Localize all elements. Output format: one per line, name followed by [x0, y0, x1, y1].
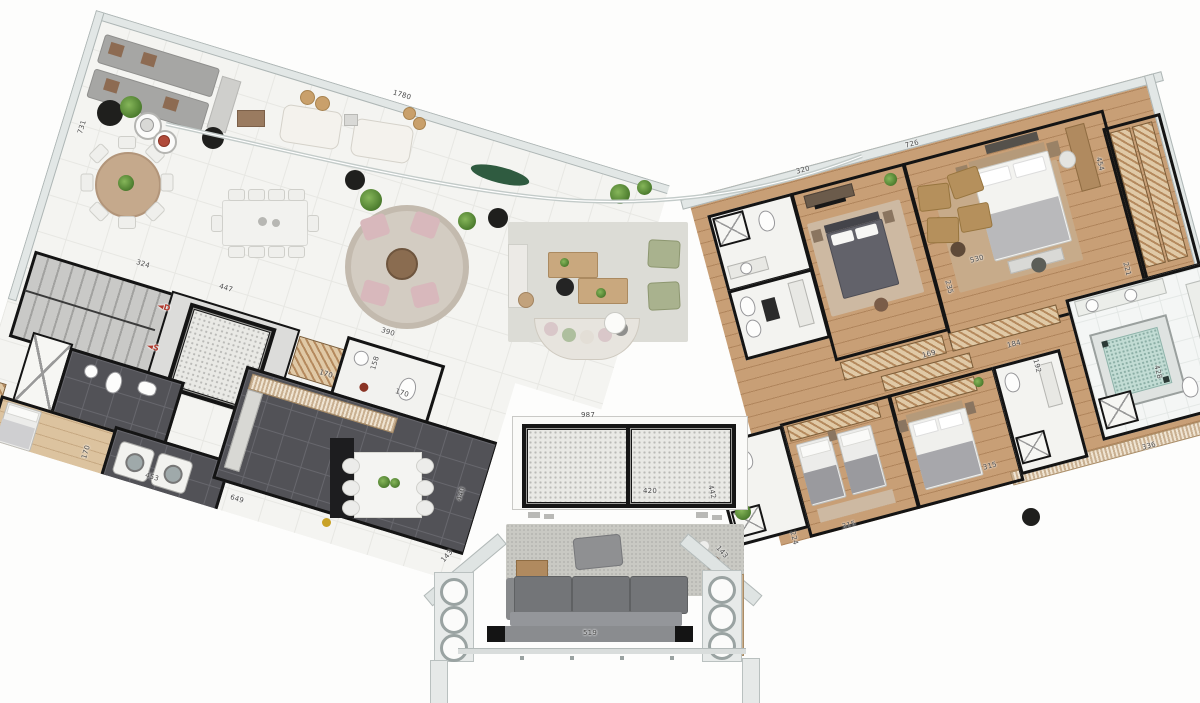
grill-grate — [158, 135, 170, 147]
pillar-leg — [742, 658, 760, 703]
baluster — [520, 656, 524, 660]
planter-bush — [120, 96, 142, 118]
baluster — [670, 656, 674, 660]
floor-plan: 1780731324447◄D◄S17045364939015817017044… — [0, 0, 1200, 703]
chair — [268, 246, 285, 258]
planter — [345, 170, 365, 190]
centerpiece — [390, 478, 400, 488]
chair — [228, 246, 245, 258]
decor-plant — [596, 288, 606, 298]
green-pouf — [647, 281, 680, 311]
sofa-cushion — [544, 322, 558, 336]
table-plant — [118, 175, 134, 191]
chair — [416, 500, 434, 516]
bush — [637, 180, 652, 195]
chair — [268, 189, 285, 201]
baluster-rail — [458, 648, 746, 654]
hall-sofa-cushion — [572, 576, 630, 614]
coffee-table — [548, 252, 598, 278]
armchair — [927, 217, 959, 244]
pouf — [315, 96, 330, 111]
armchair — [917, 182, 952, 212]
downlight — [708, 632, 736, 660]
chair — [288, 189, 305, 201]
downlight — [440, 578, 468, 606]
chair — [161, 174, 174, 192]
chair — [228, 189, 245, 201]
chair — [118, 136, 136, 149]
centerpiece — [258, 217, 267, 226]
downlight — [440, 606, 468, 634]
chair — [118, 216, 136, 229]
chair — [307, 215, 319, 232]
planter — [202, 127, 224, 149]
decor-plant — [560, 258, 569, 267]
hall-sofa-cushion — [514, 576, 572, 614]
hall-sofa-back — [487, 626, 693, 642]
chair — [211, 215, 223, 232]
doormat-item — [544, 514, 554, 519]
chair — [248, 189, 265, 201]
grill-grate — [140, 118, 154, 132]
stool-gold — [322, 518, 331, 527]
round-tray — [556, 278, 574, 296]
doormat-item — [712, 515, 722, 520]
downlight — [708, 576, 736, 604]
downlight — [708, 604, 736, 632]
chair — [342, 480, 360, 496]
bush — [458, 212, 476, 230]
centerpiece — [378, 476, 390, 488]
elevator-shaft — [522, 424, 632, 508]
column-cap — [487, 626, 505, 642]
green-pouf — [647, 239, 680, 269]
bush — [610, 184, 630, 204]
chair — [416, 480, 434, 496]
doormat-item — [528, 512, 540, 518]
sofa-cushion — [580, 330, 594, 344]
hall-lounge-chair — [572, 534, 623, 571]
pouf — [413, 117, 426, 130]
pouf — [300, 90, 315, 105]
bush — [360, 189, 382, 211]
hall-sofa-cushion — [630, 576, 688, 614]
doormat-item — [696, 512, 708, 518]
chair — [81, 174, 94, 192]
hall-sofa-seat — [510, 612, 682, 626]
baluster — [620, 656, 624, 660]
chair — [288, 246, 305, 258]
chair — [342, 500, 360, 516]
side-table — [604, 312, 626, 334]
planter — [97, 100, 123, 126]
planter — [1022, 508, 1040, 526]
chair — [416, 458, 434, 474]
baluster — [570, 656, 574, 660]
chair — [342, 458, 360, 474]
pillar-leg — [430, 660, 448, 703]
round-lounge-table — [386, 248, 418, 280]
column-cap — [675, 626, 693, 642]
lounger-table — [344, 114, 358, 126]
elevator-shaft — [626, 424, 736, 508]
side-table — [518, 292, 534, 308]
right-wing — [688, 74, 1200, 546]
centerpiece — [272, 219, 280, 227]
chair — [248, 246, 265, 258]
planter — [488, 208, 508, 228]
dimension-label: 1780 — [392, 88, 412, 101]
coffee-table-outdoor — [237, 110, 265, 127]
sofa-cushion — [562, 328, 576, 342]
